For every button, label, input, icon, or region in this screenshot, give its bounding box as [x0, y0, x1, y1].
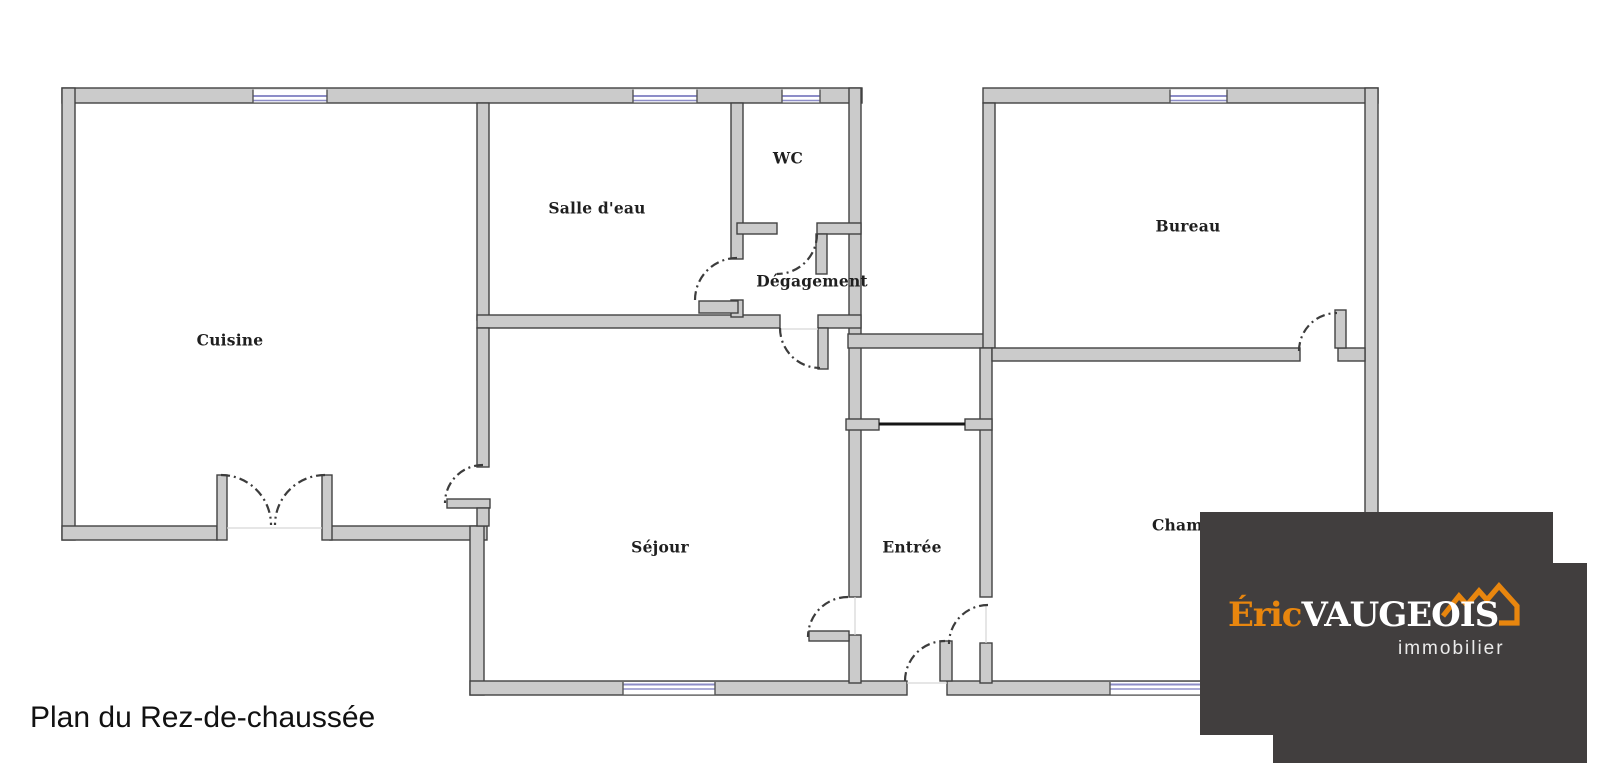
door-thresholds: [227, 329, 986, 683]
room-label-salle-deau: Salle d'eau: [548, 199, 645, 218]
page-title: Plan du Rez-de-chaussée: [30, 701, 375, 735]
logo-first-name: Éric: [1228, 595, 1301, 635]
floorplan-page: Cuisine Salle d'eau WC Dégagement Bureau…: [0, 0, 1600, 776]
room-label-degagement: Dégagement: [756, 272, 868, 291]
logo-tagline: immobilier: [1398, 639, 1505, 658]
room-label-bureau: Bureau: [1156, 217, 1221, 236]
room-label-sejour: Séjour: [631, 538, 689, 557]
door-arcs: [221, 234, 1337, 681]
room-label-wc: WC: [773, 149, 803, 168]
logo-brand-name: ÉricVAUGEOIS: [1228, 598, 1498, 632]
room-label-entree: Entrée: [882, 538, 941, 557]
room-label-cuisine: Cuisine: [197, 331, 264, 350]
logo-last-name: VAUGEOIS: [1301, 595, 1498, 635]
walls: [62, 88, 1378, 695]
logo-watermark-front-panel: [1273, 563, 1587, 763]
